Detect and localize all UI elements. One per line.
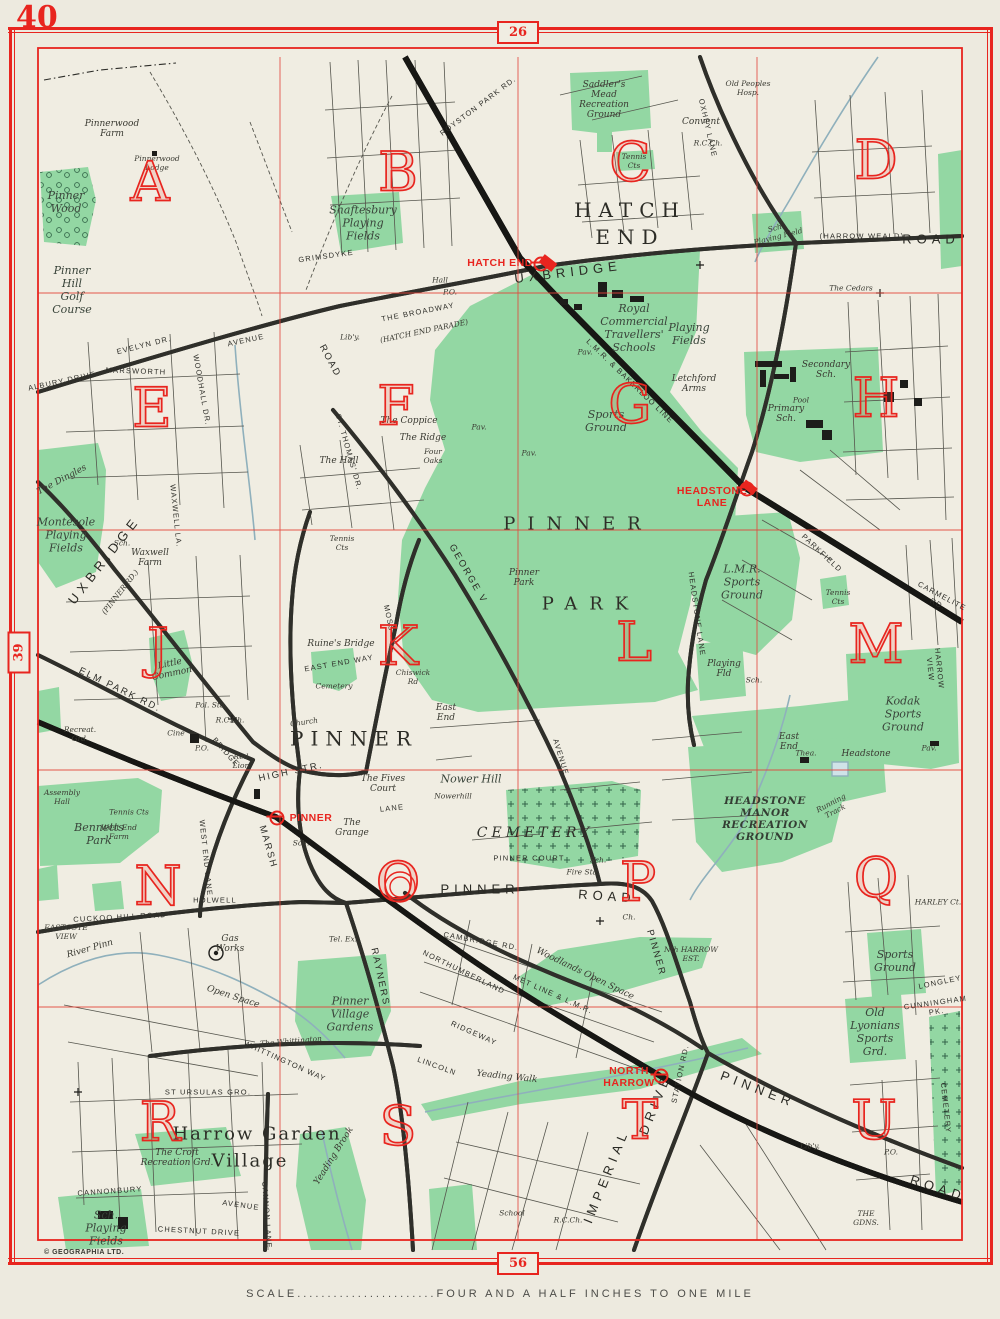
page-number-corner: 40 xyxy=(16,0,58,35)
scale-caption: SCALE.......................FOUR AND A H… xyxy=(0,1288,1000,1300)
pinner-wood-trees xyxy=(40,167,96,246)
map-page: Pinnerwood FarmPinnerwood LodgePinner Wo… xyxy=(0,0,1000,1319)
right-rule-thin xyxy=(987,27,988,1265)
adjoining-page-tab-left: 39 xyxy=(8,632,31,674)
right-rule-thick xyxy=(990,27,993,1265)
copyright-notice: © GEOGRAPHIA LTD. xyxy=(44,1249,124,1256)
adjoining-page-tab-top: 26 xyxy=(497,21,539,44)
adjoining-page-tab-bottom: 56 xyxy=(497,1252,539,1275)
map-canvas xyxy=(0,0,1000,1319)
